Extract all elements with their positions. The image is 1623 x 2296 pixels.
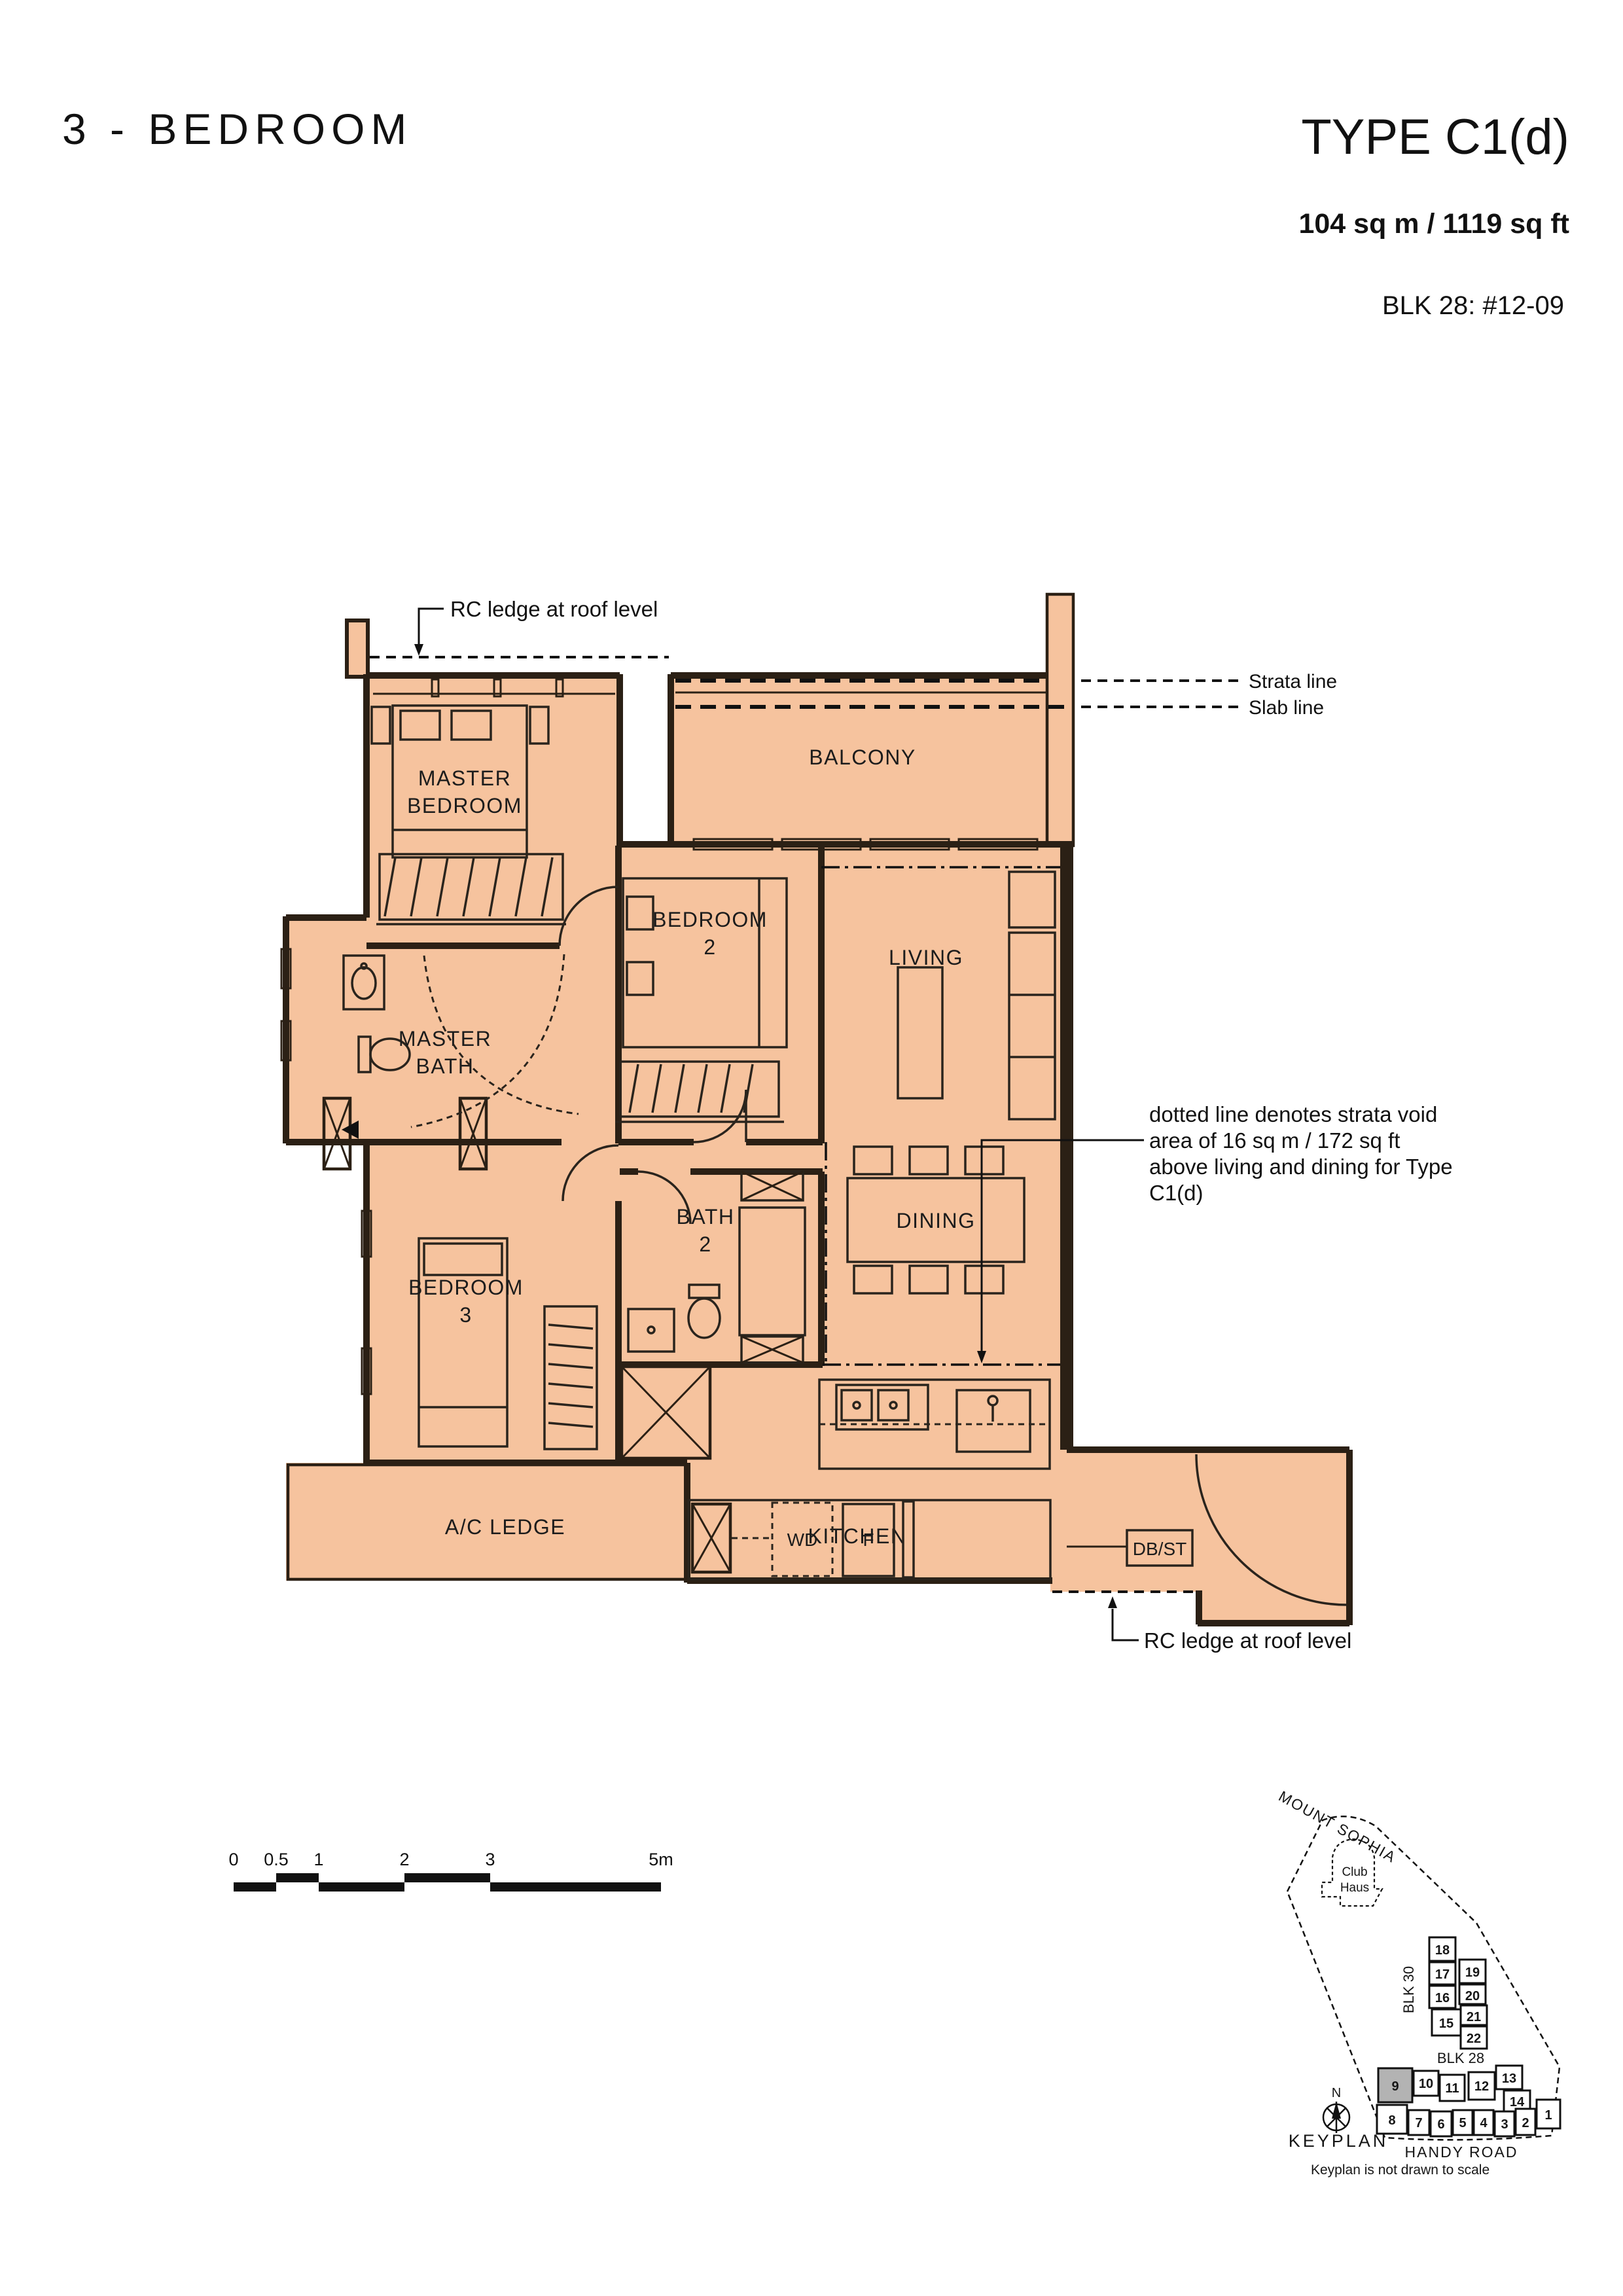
unit-area: 104 sq m / 1119 sq ft [1298,208,1569,240]
keyplan-unit-20: 20 [1465,1989,1480,2003]
keyplan-unit-1: 1 [1544,2108,1552,2123]
compass-icon: N [1323,2086,1349,2133]
keyplan-unit-15: 15 [1439,2017,1454,2031]
dining-label: DINING [897,1209,976,1232]
keyplan-unit-10: 10 [1419,2077,1433,2091]
scale-0: 0 [228,1850,238,1869]
keyplan-unit-5: 5 [1459,2116,1466,2130]
ac-ledge-label: A/C LEDGE [445,1515,565,1539]
club-haus-label: Club [1342,1865,1367,1879]
scale-3: 3 [485,1850,495,1869]
keyplan-unit-16: 16 [1435,1991,1450,2005]
unit-block-number: BLK 28: #12-09 [1382,291,1564,320]
keyplan-unit-14: 14 [1510,2095,1525,2109]
keyplan-note: Keyplan is not drawn to scale [1311,2162,1489,2178]
keyplan-title: KEYPLAN [1289,2131,1389,2151]
unit-type: TYPE C1(d) [1301,109,1569,165]
keyplan-unit-11: 11 [1445,2081,1459,2096]
strata-line-label: Strata line [1249,671,1337,692]
bedroom-2-label: BEDROOM [652,908,768,931]
slab-line-label: Slab line [1249,697,1324,719]
db-st-label: DB/ST [1133,1539,1186,1559]
floorplan-canvas: 3 - BEDROOM TYPE C1(d) 104 sq m / 1119 s… [0,0,1623,2296]
scale-bar: 0 0.5 1 2 3 5m [228,1850,673,1892]
compass-north-label: N [1332,2086,1341,2100]
keyplan-unit-3: 3 [1501,2117,1508,2132]
rc-ledge-wall-stub [347,620,368,677]
header: 3 - BEDROOM TYPE C1(d) 104 sq m / 1119 s… [62,105,1569,320]
fridge-label: F [863,1530,874,1550]
blk-30-units: 18 17 16 15 19 20 21 22 [1429,1937,1487,2049]
keyplan-unit-6: 6 [1437,2117,1444,2132]
keyplan-unit-4: 4 [1480,2116,1488,2130]
bath-2-label: BATH [677,1205,735,1229]
blk-30-label: BLK 30 [1400,1966,1417,2013]
keyplan-unit-12: 12 [1474,2079,1489,2094]
blk-28-units: 9 10 11 12 13 14 8 7 6 5 4 3 2 1 [1377,2066,1560,2136]
keyplan-unit-22: 22 [1467,2032,1481,2046]
scale-1: 1 [313,1850,323,1869]
annotation-rc-top: RC ledge at roof level [414,597,658,656]
keyplan-unit-9: 9 [1391,2079,1399,2094]
strata-void-note-4: C1(d) [1149,1181,1204,1205]
page-title: 3 - BEDROOM [62,105,412,153]
rc-ledge-bottom-label: RC ledge at roof level [1144,1628,1351,1653]
handy-road-label: HANDY ROAD [1405,2144,1518,2161]
rc-ledge-top-label: RC ledge at roof level [450,597,658,621]
club-haus-label-2: Haus [1340,1881,1369,1895]
bedroom-3-label-2: 3 [459,1303,472,1327]
keyplan-unit-13: 13 [1502,2072,1516,2086]
keyplan-unit-21: 21 [1467,2010,1481,2024]
bath-2-label-2: 2 [699,1232,711,1256]
blk-28-label: BLK 28 [1437,2050,1484,2066]
master-bedroom-label: MASTER [418,766,511,790]
keyplan-unit-8: 8 [1388,2113,1395,2128]
bedroom-3-label: BEDROOM [408,1276,524,1299]
keyplan-unit-17: 17 [1435,1967,1450,1982]
strata-void-note-1: dotted line denotes strata void [1149,1102,1437,1126]
kitchen-label: KITCHEN [808,1524,907,1548]
living-label: LIVING [889,946,963,969]
keyplan-unit-2: 2 [1522,2116,1529,2130]
floorplan-page: 3 - BEDROOM TYPE C1(d) 104 sq m / 1119 s… [0,0,1623,2296]
keyplan: MOUNT SOPHIA Club Haus BLK 30 18 17 16 1… [1276,1787,1560,2178]
scale-5m: 5m [649,1850,673,1869]
floor-plan: MASTER BEDROOM MASTER [281,594,1453,1653]
strata-void-note-2: area of 16 sq m / 172 sq ft [1149,1128,1400,1153]
scale-2: 2 [399,1850,409,1869]
scale-05: 0.5 [264,1850,289,1869]
keyplan-unit-19: 19 [1465,1965,1480,1980]
washer-dryer-label: WD [787,1530,818,1550]
master-bedroom-label-2: BEDROOM [407,794,522,817]
bedroom-2-label-2: 2 [704,935,716,959]
mount-sophia-road: MOUNT SOPHIA [1276,1787,1400,1866]
balcony-label: BALCONY [809,745,916,769]
keyplan-unit-7: 7 [1415,2116,1422,2130]
annotation-strata-slab: Strata line Slab line [1249,671,1337,719]
strata-void-note-3: above living and dining for Type [1149,1155,1453,1179]
keyplan-unit-18: 18 [1435,1943,1450,1958]
master-bath-label-2: BATH [416,1054,474,1078]
